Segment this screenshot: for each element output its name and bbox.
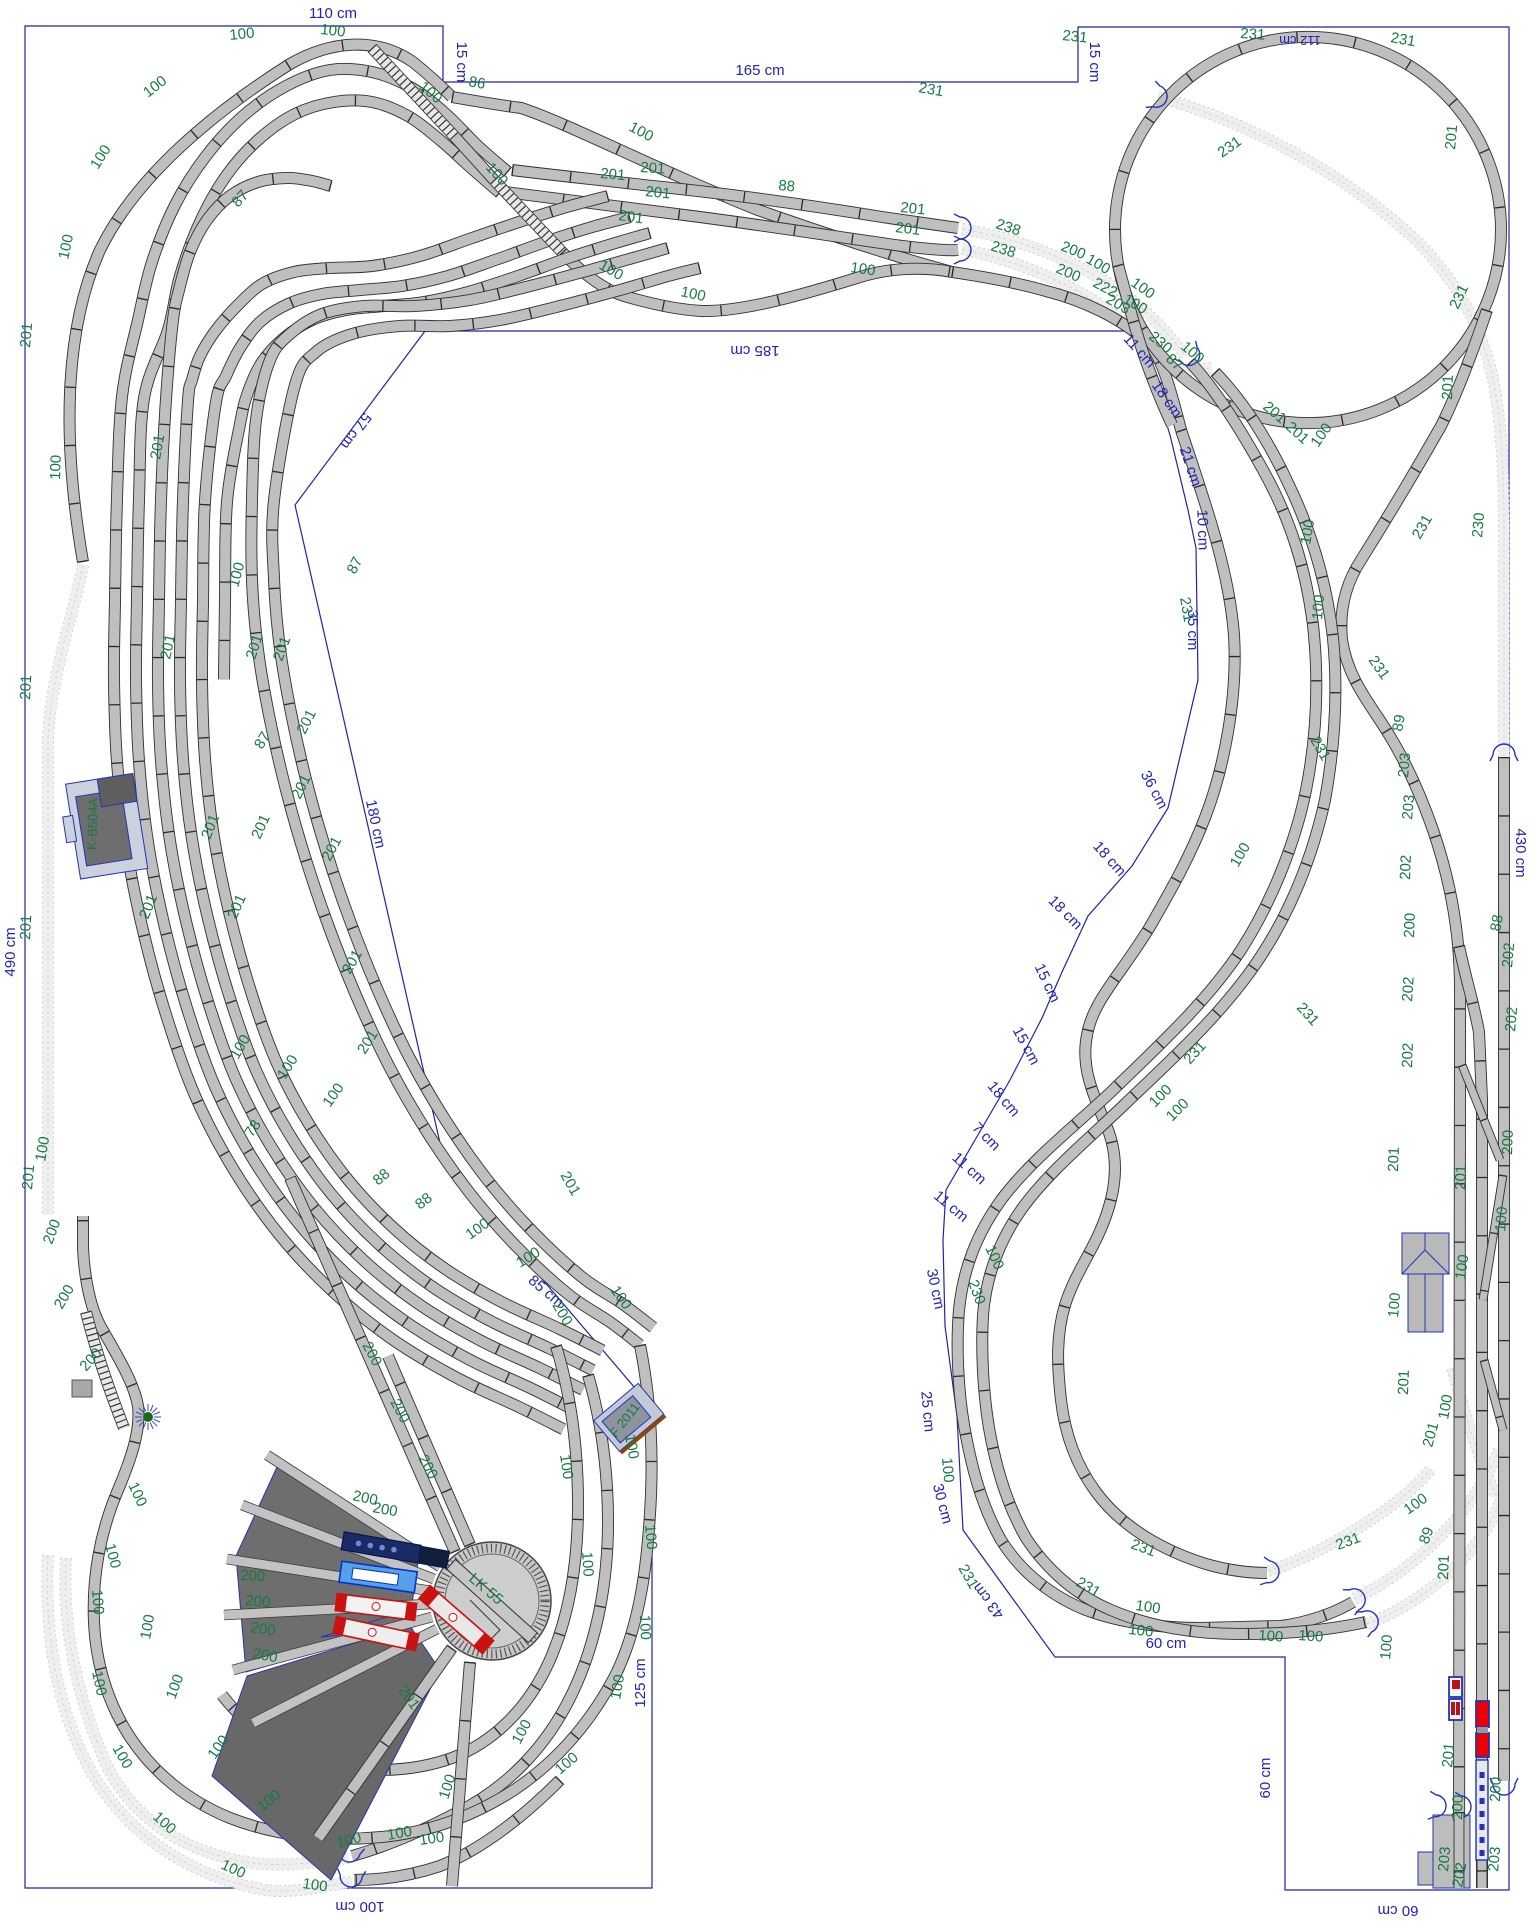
- svg-text:15 cm: 15 cm: [453, 42, 470, 83]
- svg-text:88: 88: [778, 177, 796, 195]
- svg-text:201: 201: [1395, 1370, 1413, 1396]
- svg-text:201: 201: [600, 165, 626, 184]
- svg-text:200: 200: [245, 1592, 271, 1611]
- svg-text:86: 86: [467, 73, 486, 93]
- svg-text:110 cm: 110 cm: [309, 5, 357, 22]
- svg-text:201: 201: [617, 207, 644, 227]
- svg-text:15 cm: 15 cm: [1086, 42, 1103, 83]
- svg-text:100: 100: [1492, 1206, 1511, 1232]
- svg-text:202: 202: [1397, 855, 1415, 881]
- svg-text:100: 100: [1298, 1627, 1324, 1646]
- svg-text:202: 202: [1499, 942, 1518, 968]
- svg-text:200: 200: [1499, 1130, 1517, 1156]
- svg-text:100: 100: [641, 1524, 660, 1550]
- svg-text:100: 100: [849, 259, 876, 279]
- svg-text:100: 100: [556, 1453, 576, 1480]
- svg-text:203: 203: [1395, 752, 1414, 778]
- svg-text:100: 100: [229, 24, 256, 44]
- svg-text:100: 100: [938, 1457, 957, 1483]
- svg-text:203: 203: [1485, 1846, 1504, 1872]
- svg-text:60 cm: 60 cm: [1257, 1758, 1274, 1799]
- svg-text:202: 202: [1399, 976, 1418, 1002]
- svg-text:201: 201: [1442, 124, 1461, 150]
- svg-text:201: 201: [895, 219, 922, 239]
- svg-text:201: 201: [17, 914, 35, 940]
- svg-text:202: 202: [1502, 1006, 1521, 1032]
- svg-text:200: 200: [1487, 1777, 1505, 1803]
- svg-text:100: 100: [418, 1829, 445, 1849]
- svg-text:100: 100: [301, 1875, 328, 1895]
- svg-text:201: 201: [900, 199, 927, 219]
- svg-text:201: 201: [640, 159, 666, 178]
- svg-text:200: 200: [1449, 1795, 1467, 1821]
- svg-text:430 cm: 430 cm: [1512, 828, 1529, 877]
- svg-text:203: 203: [1399, 794, 1418, 820]
- svg-text:200: 200: [240, 1567, 266, 1585]
- svg-text:112 cm: 112 cm: [1279, 33, 1321, 48]
- svg-text:25 cm: 25 cm: [917, 1391, 937, 1433]
- svg-text:100 cm: 100 cm: [335, 1898, 384, 1915]
- svg-text:230: 230: [1469, 512, 1488, 538]
- svg-text:100: 100: [1309, 594, 1328, 620]
- svg-text:100: 100: [1134, 1597, 1161, 1617]
- svg-text:202: 202: [1399, 1043, 1417, 1069]
- svg-text:10 cm: 10 cm: [1193, 509, 1211, 550]
- svg-text:K-B504A: K-B504A: [84, 797, 101, 850]
- svg-text:201: 201: [1439, 375, 1457, 401]
- svg-text:125 cm: 125 cm: [632, 1658, 649, 1707]
- svg-text:100: 100: [1377, 1634, 1396, 1660]
- svg-text:100: 100: [578, 1551, 597, 1577]
- svg-text:88: 88: [1487, 913, 1507, 932]
- svg-text:100: 100: [320, 21, 347, 41]
- svg-text:231: 231: [1062, 27, 1089, 47]
- svg-text:201: 201: [19, 1164, 38, 1190]
- svg-text:201: 201: [17, 674, 35, 700]
- svg-text:201: 201: [17, 322, 36, 348]
- svg-text:201: 201: [1452, 1165, 1470, 1191]
- svg-text:100: 100: [1258, 1627, 1284, 1646]
- svg-text:165 cm: 165 cm: [735, 62, 784, 79]
- svg-text:89: 89: [1389, 713, 1409, 732]
- svg-text:100: 100: [1452, 1253, 1472, 1280]
- svg-text:201: 201: [1435, 1555, 1453, 1581]
- svg-text:100: 100: [1385, 1292, 1404, 1318]
- svg-text:201: 201: [1439, 1742, 1458, 1768]
- svg-text:100: 100: [88, 1589, 107, 1615]
- svg-text:100: 100: [636, 1615, 654, 1641]
- svg-text:100: 100: [47, 455, 65, 481]
- svg-text:200: 200: [1401, 913, 1419, 939]
- svg-text:201: 201: [1385, 1147, 1403, 1173]
- svg-text:60 cm: 60 cm: [1378, 1902, 1419, 1919]
- svg-text:200: 200: [249, 1619, 276, 1639]
- svg-text:100: 100: [1128, 1621, 1155, 1641]
- svg-text:201: 201: [645, 183, 672, 203]
- svg-text:185 cm: 185 cm: [730, 342, 779, 359]
- svg-text:231: 231: [1240, 25, 1266, 44]
